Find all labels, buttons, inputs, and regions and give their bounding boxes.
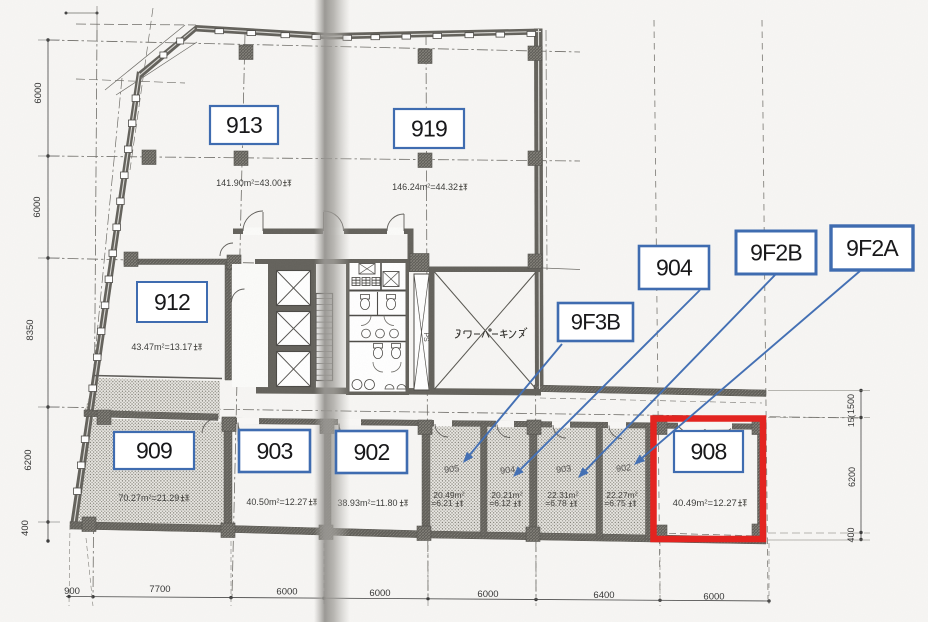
svg-text:919: 919 <box>411 116 447 142</box>
svg-text:913: 913 <box>226 112 262 138</box>
svg-text:912: 912 <box>154 289 190 315</box>
svg-text:902: 902 <box>354 439 390 465</box>
svg-text:9F3B: 9F3B <box>571 310 621 335</box>
svg-text:9F2B: 9F2B <box>750 240 802 266</box>
svg-text:904: 904 <box>656 255 693 281</box>
svg-text:908: 908 <box>691 439 727 465</box>
svg-text:903: 903 <box>257 438 293 464</box>
svg-text:9F2A: 9F2A <box>846 235 899 261</box>
svg-text:909: 909 <box>136 438 172 464</box>
